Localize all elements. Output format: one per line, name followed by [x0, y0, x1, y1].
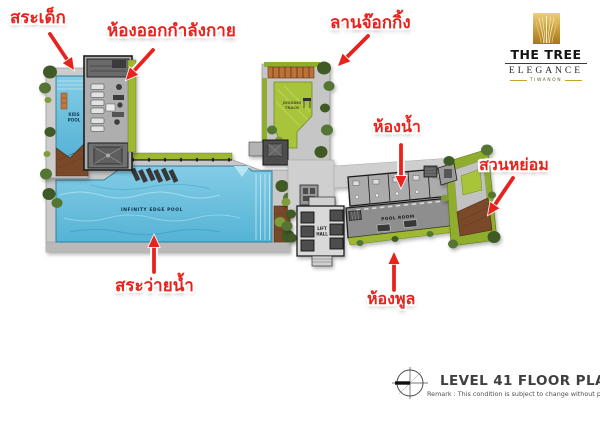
- lift-hall-label: LIFT: [317, 226, 327, 231]
- lift-hall: LIFT HALL: [297, 197, 344, 266]
- label-jogging-area: ลานจ๊อกกิ้ง: [330, 13, 411, 34]
- left-wing: KIDS POOL: [39, 56, 136, 180]
- tree-logo-icon: [533, 13, 560, 44]
- floor-plan-page: INFINITY EDGE POOL: [0, 0, 600, 424]
- label-swimming-pool: สระว่ายน้ำ: [115, 276, 194, 297]
- floor-plan-title: LEVEL 41 FLOOR PLAN: [440, 373, 600, 389]
- label-fitness-room: ห้องออกกำลังกาย: [107, 21, 236, 42]
- logo-name: THE TREE: [499, 47, 593, 62]
- fitness-room: [84, 56, 132, 170]
- arrow-kids-pool: [50, 34, 74, 70]
- brand-logo: THE TREE ELEGANCE TIWANON: [499, 13, 593, 83]
- arrow-pool-room: [389, 252, 400, 290]
- label-bathroom: ห้องน้ำ: [373, 117, 421, 137]
- label-garden: สวนหย่อม: [479, 155, 549, 175]
- logo-goldline-left: [510, 80, 527, 81]
- compass-icon: [392, 366, 428, 402]
- svg-text:TRACK: TRACK: [285, 105, 300, 110]
- kids-pool-label: KIDS: [68, 112, 79, 117]
- svg-text:POOL: POOL: [68, 118, 81, 123]
- logo-subname: ELEGANCE: [499, 66, 593, 76]
- logo-goldline-right: [565, 80, 582, 81]
- floor-plan-remark: Remark : This condition is subject to ch…: [427, 390, 600, 398]
- arrow-jogging: [338, 36, 368, 66]
- jogging-track-area: JOGGING TRACK: [249, 62, 335, 167]
- infinity-pool-label: INFINITY EDGE POOL: [121, 207, 183, 213]
- svg-text:HALL: HALL: [316, 232, 328, 237]
- logo-location: TIWANON: [530, 78, 562, 83]
- logo-divider: [505, 63, 587, 64]
- label-pool-room: ห้องพูล: [367, 289, 415, 309]
- label-kids-pool: สระเด็ก: [10, 8, 66, 29]
